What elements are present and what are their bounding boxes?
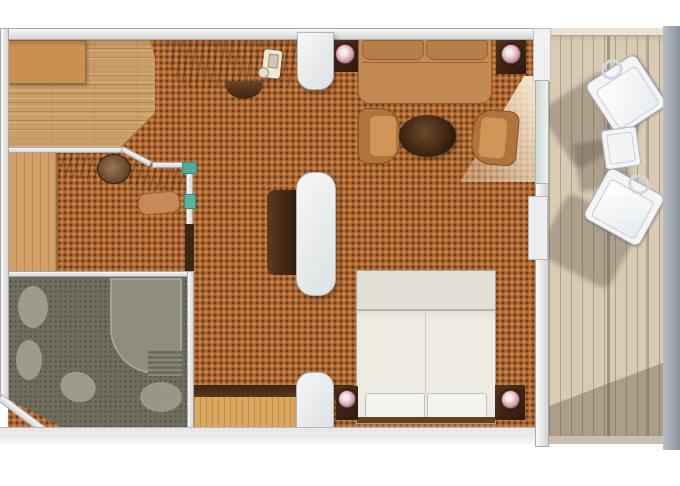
armchair-right	[470, 108, 521, 167]
vanity-mirror	[97, 154, 131, 184]
sofa-cushion	[362, 40, 424, 60]
balcony-bottom-rail	[549, 436, 663, 444]
shower-seat	[18, 286, 48, 328]
sofa-seam	[362, 62, 488, 63]
toilet	[56, 367, 100, 407]
bathroom-wall-top	[8, 271, 192, 277]
balcony-outer-edge	[663, 26, 680, 450]
top-wall	[0, 28, 549, 40]
dressing-wall-horizontal	[8, 147, 124, 153]
armchair-left	[358, 108, 400, 164]
glass-accent-top	[182, 162, 197, 174]
glass-accent-bottom	[184, 194, 196, 209]
sofa-cushion	[426, 40, 488, 60]
bathroom-wall-right	[187, 271, 194, 431]
nightstand-lamp-left	[338, 390, 356, 408]
bath-fixture	[140, 382, 182, 412]
duvet-centerline	[425, 313, 426, 395]
nightstand-lamp-right	[501, 390, 520, 409]
balcony-wall-white-block	[533, 28, 551, 82]
armchair-seat	[370, 116, 396, 156]
balcony-table-edge	[606, 131, 636, 164]
pillow-left	[365, 393, 425, 419]
telephone-dial	[258, 67, 270, 79]
wardrobe	[8, 152, 58, 273]
dressing-door-dark	[185, 224, 194, 276]
bath-mat	[148, 350, 182, 376]
telephone	[262, 49, 283, 79]
pillar-middle	[296, 172, 336, 296]
balcony-top-rail	[549, 28, 663, 36]
pillar-bottom	[296, 372, 334, 430]
headboard	[357, 417, 495, 423]
pillow-right	[427, 393, 487, 419]
sofa	[358, 38, 492, 104]
duvet-fold	[357, 309, 495, 311]
balcony-glass-door	[535, 80, 549, 184]
round-coffee-table	[399, 115, 456, 157]
balcony-wall-notch	[528, 196, 548, 260]
entry-wood-floor	[188, 397, 298, 428]
armchair-seat	[478, 117, 507, 159]
vanity-bench	[137, 190, 181, 216]
bottom-wall	[0, 427, 558, 445]
divider-cabinet	[267, 190, 298, 275]
telephone-screen	[268, 54, 279, 69]
left-wall	[0, 28, 9, 402]
double-bed	[356, 270, 496, 424]
floor-plan	[0, 0, 680, 486]
bathroom-floor	[8, 274, 192, 430]
balcony-side-table	[600, 126, 641, 171]
table-lamp-right	[501, 44, 521, 64]
table-lamp-left	[335, 44, 355, 64]
pillar-top	[297, 32, 334, 90]
washbasin	[16, 340, 42, 380]
